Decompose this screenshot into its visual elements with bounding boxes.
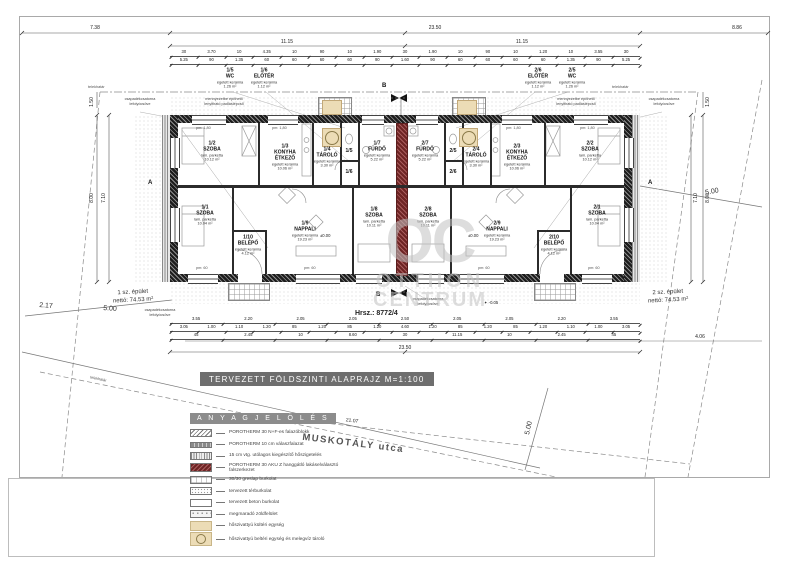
legend-item: POROTHERM 30 N+F-es falazóblokk [190,428,400,438]
window [582,274,612,284]
window [188,274,218,284]
window [624,208,634,242]
section-mark-b-top: B [382,83,386,89]
window [574,115,608,125]
partition [258,123,260,185]
dim-left-v2: 7.10 [101,193,107,203]
level-marker-zero-left: ±0.00 [320,233,330,238]
entry-door-gap [540,274,564,282]
section-mark-a-left: A [148,180,152,186]
dim-chain-top-b: 5.25901.3560606060901.6090606060601.3590… [170,58,640,65]
legend-item: 30/30 greslap burkolat [190,475,400,485]
partition [444,123,446,185]
tile-pad-entry-right [534,283,576,301]
dim-side-left: 5.00 [103,305,117,313]
room-label-1-9: 1/9NAPPALI égetett kerámia19.23 m² [292,222,318,243]
tank-circle [462,131,476,145]
legend-item: POROTHERM 30 AKU Z hanggátló lakáselvála… [190,463,400,474]
window [170,138,180,168]
legend-swatch-green [190,510,212,518]
room-label-2-4: 2/4TÁROLÓ égetett kerámia3.30 m² [463,148,489,169]
legend-item: tervezett térburkolat [190,486,400,496]
dim-top-total-mid: 23.50 [429,25,442,31]
partition [265,230,267,274]
sill-label: pm: 60 [588,266,600,270]
room-label-1-10: 1/10BELÉPŐ égetett kerámia4.12 m² [235,236,261,257]
legend-swatch-concrete [190,499,212,507]
dim-right-v1: 7.10 [693,193,699,203]
heat-pump-indoor-left [322,128,341,147]
room-label-1-4: 1/4TÁROLÓ égetett kerámia3.30 m² [314,148,340,169]
sill-label: pm: 1,80 [272,126,287,130]
legend-item: hőszivattyú kültéri egység [190,521,400,531]
dim-left-v3: 1.50 [89,97,95,107]
partition [490,123,492,185]
section-mark-a-right: A [648,180,652,186]
sheet-title: TERVEZETT FÖLDSZINTI ALAPRAJZ M=1:100 [200,372,434,386]
room-label-1-2: 1/2SZOBA lam. parketta10.12 m² [201,142,223,163]
sill-label: pm: 60 [304,266,316,270]
watermark-oc: OC [352,213,508,272]
dim-top-total-left: 7.38 [90,25,100,31]
legend-item: 15 cm vtg. utólagos kiegészítő hőszigete… [190,451,400,461]
building-1-net-label: 1 sz. épület nettó: 74.53 m² [112,288,153,305]
heat-pump-indoor-right [459,128,478,147]
plot-number: Hrsz.: 8772/4 [355,310,398,317]
exterior-wall-top [170,115,632,123]
legend-swatch-hp-indoor [190,532,212,546]
window [502,115,532,125]
partition [537,230,572,232]
top-label-1-5: 1/5WC égetett kerámia1.26 m² [217,69,243,90]
dim-bottom-total: 23.50 [399,345,412,351]
tank-circle [325,131,339,145]
window [416,115,438,125]
room-label-2-5: 2/5 [450,149,457,155]
heat-pump-outdoor-right [457,100,477,115]
dim-chain-top-a: 303.70104.351090101.90301.901090101.2010… [170,50,640,57]
legend-swatch-porotherm10 [190,442,212,448]
room-label-2-3: 2/3KONYHA ÉTKEZŐ égetett kerámia10.06 m² [499,145,535,172]
dim-left-v1: 8.00 [89,193,95,203]
partition [232,230,267,232]
sill-label: pm: 60 [196,266,208,270]
insulation-strip-left [162,115,170,282]
room-label-1-1: 1/1SZOBA lam. parketta10.04 m² [194,206,216,227]
sill-label: pm: 1,80 [580,126,595,130]
sill-label: pm: 1,80 [506,126,521,130]
partition [340,160,360,162]
material-legend: A N Y A G J E L Ö L É S POROTHERM 30 N+F… [190,407,400,548]
top-label-2-5: 2/5WC égetett kerámia1.26 m² [559,69,585,90]
watermark-otthon-centrum: OC OTTHON CENTRUM [352,213,508,310]
room-label-2-10: 2/10BELÉPŐ égetett kerámia4.12 m² [541,236,567,257]
legend-item: tervezett beton burkolat [190,498,400,508]
window [296,274,340,284]
note-downpipe-top-right: csapadékcsatorna lefolyócsöve [642,97,686,106]
heat-pump-outdoor-left [322,100,342,115]
paving-speckle-right [640,115,668,282]
boundary-label-right: telekhatár [612,85,629,89]
window [170,208,180,242]
building-2-net-label: 2 sz. épület nettó: 74.53 m² [647,288,688,305]
room-label-2-7: 2/7FÜRDŐ égetett kerámia5.22 m² [412,142,438,163]
dim-1115-right: 11.15 [516,39,528,45]
legend-item: megmaradó zöldfelület [190,509,400,519]
room-label-1-6: 1/6 [346,170,353,176]
window [362,115,384,125]
room-label-2-2: 2/2SZOBA lam. parketta10.12 m² [579,142,601,163]
partition [358,123,360,185]
legend-swatch-hp-outdoor [190,521,212,531]
note-attic-left: mennyezetbe építhető lenyitható padláslé… [198,97,250,106]
window [268,115,298,125]
dim-front-left: 2.17 [39,302,53,310]
room-label-1-5: 1/5 [346,149,353,155]
sill-label: pm: 1,80 [196,126,211,130]
dim-chain-bottom-a: 3.552.202.052.052.502.052.052.203.55 [170,317,640,324]
partition [537,230,539,274]
note-downpipe-left-low: csapadékcsatorna lefolyócsöve [138,308,182,317]
room-label-1-3: 1/3KONYHA ÉTKEZŐ égetett kerámia10.06 m² [267,145,303,172]
dim-bottom-right-ext: 4.06 [695,334,705,340]
dim-top-total-right: 8.86 [732,25,742,31]
legend-header: A N Y A G J E L Ö L É S [190,413,336,424]
legend-swatch-insulation [190,452,212,460]
window [624,138,634,168]
room-label-2-6: 2/6 [450,170,457,176]
dim-chain-bottom-b: 3.051.001.101.20851.20851.204.601.20851.… [170,325,640,332]
top-label-1-6: 1/6ELŐTÉR égetett kerámia1.12 m² [251,69,277,90]
legend-item: POROTHERM 10 cm válaszfalazat [190,440,400,450]
floor-plan-drawing: 1/1SZOBA lam. parketta10.04 m² 1/2SZOBA … [0,0,800,561]
partition [178,185,624,188]
paving-speckle-left [134,115,162,282]
note-attic-right: mennyezetbe építhető lenyitható padláslé… [550,97,602,106]
legend-swatch-aku-wall [190,463,212,472]
partition [544,123,546,185]
legend-item: hőszivattyú beltéri egység és melegvíz t… [190,532,400,546]
room-label-1-7: 1/7FÜRDŐ égetett kerámia5.22 m² [364,142,390,163]
note-downpipe-top-left: csapadékcsatorna lefolyócsöve [118,97,162,106]
boundary-label-left: telekhatár [88,85,105,89]
top-label-2-6: 2/6ELŐTÉR égetett kerámia1.12 m² [525,69,551,90]
dim-right-v3: 1.50 [705,97,711,107]
legend-swatch-paving [190,487,212,495]
legend-swatch-greslap [190,476,212,484]
window [192,115,226,125]
dim-chain-bottom-c: 452.45108.603011.15102.4545 [170,333,640,340]
entry-door-gap [238,274,262,282]
dim-1115-left: 11.15 [281,39,293,45]
legend-swatch-porotherm30 [190,429,212,437]
partition [444,160,464,162]
tile-pad-entry-left [228,283,270,301]
room-label-2-1: 2/1SZOBA lam. parketta10.04 m² [586,206,608,227]
